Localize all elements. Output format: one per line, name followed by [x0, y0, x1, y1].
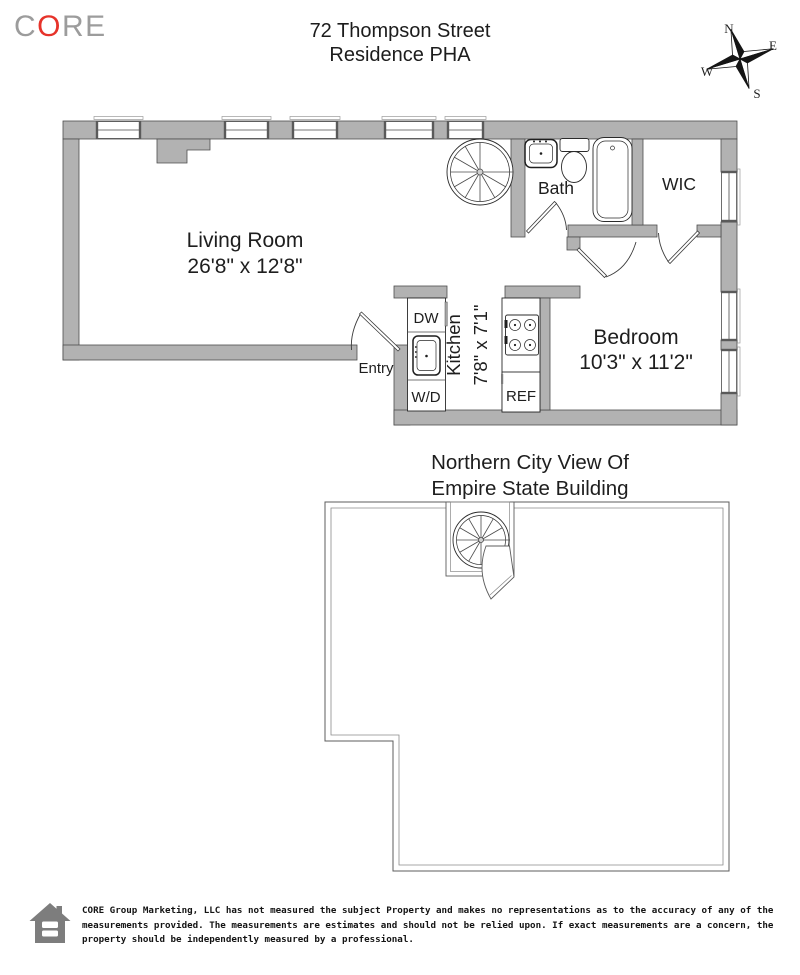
house-icon: [28, 901, 72, 945]
washer-dryer-label: W/D: [411, 389, 440, 406]
roof-floorplan: Northern City View Of Empire State Build…: [325, 451, 729, 871]
disclaimer: CORE Group Marketing, LLC has not measur…: [82, 904, 787, 948]
compass-south-label: S: [753, 86, 760, 101]
window-icon: [721, 347, 740, 396]
spiral-staircase-icon: [447, 139, 513, 205]
wic-door-icon: [659, 231, 700, 264]
bedroom-dims: 10'3" x 11'2": [579, 351, 693, 374]
entry-label: Entry: [358, 360, 394, 377]
roof-caption-line1: Northern City View Of: [431, 451, 629, 474]
dishwasher-label: DW: [414, 310, 440, 327]
compass-rose: N E W S: [697, 19, 782, 101]
compass-east-label: E: [769, 38, 777, 53]
wic-label: WIC: [662, 174, 696, 194]
floorplan-page: CORE 72 Thompson Street Residence PHA N …: [0, 0, 800, 975]
living-room-dims: 26'8" x 12'8": [187, 255, 302, 278]
compass-north-label: N: [724, 21, 734, 36]
stove-icon: [505, 315, 539, 355]
window-icon: [721, 289, 740, 343]
compass-west-label: W: [701, 64, 714, 79]
bedroom-door-icon: [577, 242, 636, 278]
kitchen-dims: 7'8" x 7'1": [470, 305, 491, 386]
roof-caption-line2: Empire State Building: [431, 477, 628, 500]
bath-sink-icon: [525, 140, 557, 168]
window-icon: [290, 117, 340, 140]
kitchen-sink-icon: [413, 336, 440, 375]
living-room-label: Living Room: [187, 229, 304, 252]
bath-door-icon: [527, 202, 567, 234]
bath-label: Bath: [538, 178, 574, 198]
bathtub-icon: [593, 138, 632, 222]
toilet-icon: [560, 139, 589, 183]
kitchen-label: Kitchen: [443, 314, 464, 376]
main-floorplan: Living Room 26'8" x 12'8" Bath WIC Bedro…: [63, 117, 740, 426]
roof-outline-outer: [325, 502, 729, 871]
window-icon: [382, 117, 436, 140]
window-icon: [222, 117, 271, 140]
compass-star-icon: [697, 19, 782, 99]
refrigerator-label: REF: [506, 388, 536, 405]
entry-door-icon: [351, 312, 400, 351]
window-icon: [445, 117, 486, 140]
window-icon: [94, 117, 143, 140]
disclaimer-line2: measurements provided. The measurements …: [82, 919, 787, 934]
disclaimer-line1: CORE Group Marketing, LLC has not measur…: [82, 904, 787, 919]
disclaimer-line3: property should be independently measure…: [82, 933, 787, 948]
walls: [63, 121, 737, 425]
floorplan-drawing: N E W S: [0, 0, 800, 975]
bedroom-label: Bedroom: [593, 326, 678, 349]
window-icon: [721, 169, 740, 225]
